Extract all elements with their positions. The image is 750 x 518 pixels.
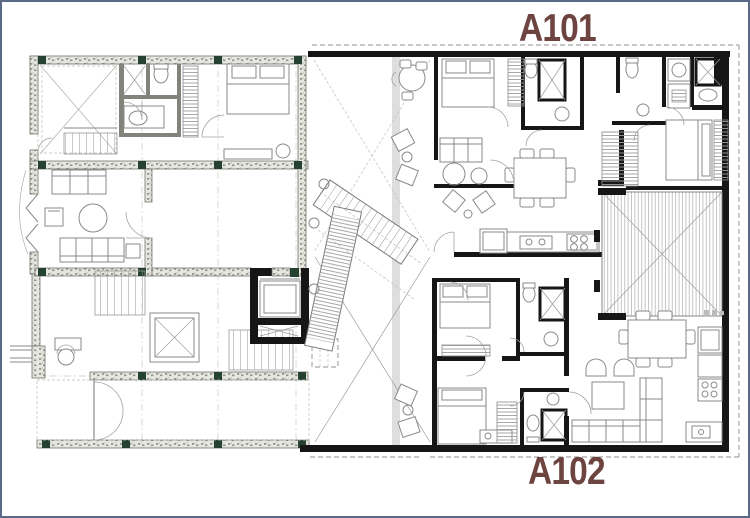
floor-plan-page: A101 A102 bbox=[0, 0, 750, 518]
central-staircase bbox=[305, 179, 422, 351]
void-room bbox=[40, 65, 117, 154]
closet bbox=[508, 59, 524, 106]
dining-table bbox=[514, 158, 566, 198]
stairs bbox=[64, 133, 117, 154]
unit-label-a101: A101 bbox=[519, 10, 596, 48]
closet bbox=[442, 345, 490, 356]
left-building bbox=[10, 56, 338, 448]
stairs bbox=[497, 402, 517, 443]
gate-icon bbox=[94, 382, 123, 440]
kitchen bbox=[480, 229, 599, 253]
closet bbox=[183, 66, 198, 137]
dining-table bbox=[628, 320, 686, 358]
closet bbox=[714, 120, 728, 180]
living-room bbox=[45, 170, 140, 262]
unit-label-a102: A102 bbox=[528, 453, 605, 491]
roof-deck bbox=[594, 188, 722, 320]
floor-plan-drawing bbox=[2, 2, 750, 518]
right-building bbox=[300, 45, 739, 457]
stairs bbox=[95, 271, 145, 315]
bedroom bbox=[224, 64, 290, 159]
window-icon bbox=[26, 194, 38, 252]
stairs bbox=[602, 132, 638, 186]
